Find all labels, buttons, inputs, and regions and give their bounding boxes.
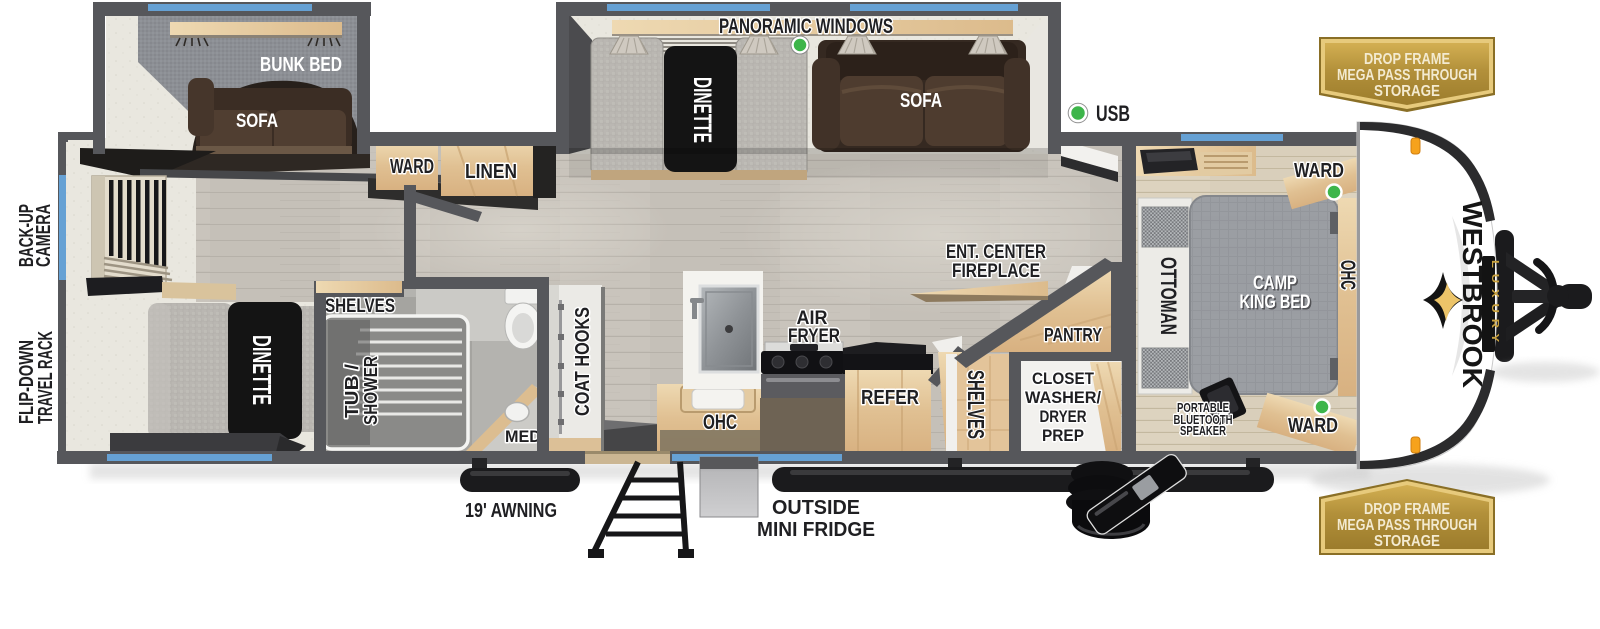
svg-text:DRYER: DRYER [1040,407,1087,426]
svg-text:MEGA PASS THROUGH: MEGA PASS THROUGH [1337,517,1477,534]
svg-text:PANTRY: PANTRY [1044,325,1102,345]
svg-text:STORAGE: STORAGE [1374,533,1440,550]
svg-text:OUTSIDE: OUTSIDE [772,497,860,519]
svg-text:WARD: WARD [390,156,434,178]
svg-text:SHOWER: SHOWER [361,356,381,425]
svg-text:CAMP: CAMP [1253,273,1297,294]
svg-text:BUNK BED: BUNK BED [260,54,342,76]
svg-text:SHELVES: SHELVES [963,370,989,439]
svg-text:SHELVES: SHELVES [325,296,395,317]
svg-text:OTTOMAN: OTTOMAN [1156,257,1181,335]
svg-text:CAMERA: CAMERA [33,204,55,267]
svg-text:ENT. CENTER: ENT. CENTER [946,242,1046,263]
svg-text:DROP FRAME: DROP FRAME [1364,501,1450,518]
svg-text:CLOSET: CLOSET [1032,369,1095,388]
svg-text:DINETTE: DINETTE [688,77,716,143]
svg-text:OHC: OHC [1336,260,1359,290]
svg-text:TRAVEL RACK: TRAVEL RACK [35,331,57,424]
svg-text:TUB /: TUB / [342,364,362,418]
svg-text:FIREPLACE: FIREPLACE [952,261,1040,282]
svg-text:DINETTE: DINETTE [247,335,277,405]
svg-text:19' AWNING: 19' AWNING [465,500,557,522]
svg-text:LUXURY: LUXURY [1489,260,1500,348]
svg-text:PREP: PREP [1042,426,1084,445]
svg-text:PANORAMIC WINDOWS: PANORAMIC WINDOWS [719,15,893,38]
svg-text:MEGA PASS THROUGH: MEGA PASS THROUGH [1337,67,1477,84]
svg-text:WARD: WARD [1288,415,1338,437]
svg-text:WARD: WARD [1294,160,1344,182]
svg-text:SOFA: SOFA [236,111,278,132]
svg-text:MED: MED [505,427,541,446]
svg-text:REFER: REFER [861,387,919,409]
svg-text:COAT HOOKS: COAT HOOKS [572,307,594,416]
svg-text:STORAGE: STORAGE [1374,83,1440,100]
svg-text:KING BED: KING BED [1240,292,1311,313]
svg-text:SPEAKER: SPEAKER [1180,424,1226,438]
svg-text:MINI FRIDGE: MINI FRIDGE [757,519,875,541]
svg-text:DROP FRAME: DROP FRAME [1364,51,1450,68]
svg-text:LINEN: LINEN [465,161,517,183]
svg-text:USB: USB [1096,101,1130,126]
svg-text:FRYER: FRYER [788,326,840,347]
svg-text:SOFA: SOFA [900,90,942,112]
svg-text:WASHER/: WASHER/ [1025,388,1101,407]
